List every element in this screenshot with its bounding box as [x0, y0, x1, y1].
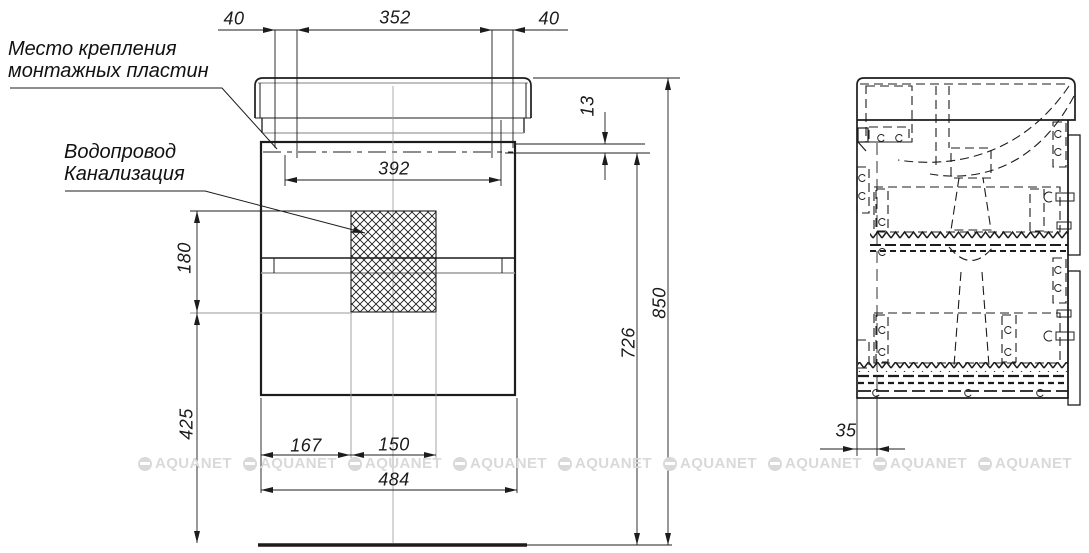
technical-drawing-page: Место крепления монтажных пластин Водопр…	[0, 0, 1089, 553]
dim-back-panel-offset: 35	[835, 421, 856, 442]
plumbing-label: Водопровод Канализация	[64, 141, 185, 185]
plumbing-label-line2: Канализация	[64, 163, 185, 185]
dim-top-right-offset: 40	[538, 9, 559, 30]
drawing-canvas	[0, 0, 1089, 553]
mounting-leader-line	[10, 88, 277, 149]
dim-inner-width: 392	[378, 159, 410, 180]
dim-hatch-left-offset: 167	[290, 436, 322, 457]
plumbing-label-line1: Водопровод	[64, 141, 185, 163]
side-view	[857, 78, 1080, 405]
dim-hatch-width: 150	[378, 435, 410, 456]
dim-rim-gap: 13	[578, 95, 599, 116]
dim-top-span: 352	[379, 8, 411, 29]
mounting-plates-label-line1: Место крепления	[8, 38, 209, 60]
plumbing-hatch-area	[351, 211, 436, 312]
dim-top-left-offset: 40	[223, 9, 244, 30]
mounting-plates-label-line2: монтажных пластин	[8, 60, 209, 82]
plumbing-leader-line	[65, 191, 365, 233]
dim-floor-clearance: 425	[177, 408, 198, 440]
dim-body-height: 726	[619, 327, 640, 359]
side-view-dimension-35	[820, 398, 905, 456]
dim-total-height: 850	[650, 287, 671, 319]
side-view-hidden-lines	[857, 84, 1074, 398]
dim-hatch-height: 180	[175, 242, 196, 274]
dim-cabinet-width: 484	[378, 470, 410, 491]
drawer-slide-rails	[858, 229, 1068, 391]
clip-symbols	[859, 131, 1062, 397]
mounting-plates-label: Место крепления монтажных пластин	[8, 38, 209, 82]
